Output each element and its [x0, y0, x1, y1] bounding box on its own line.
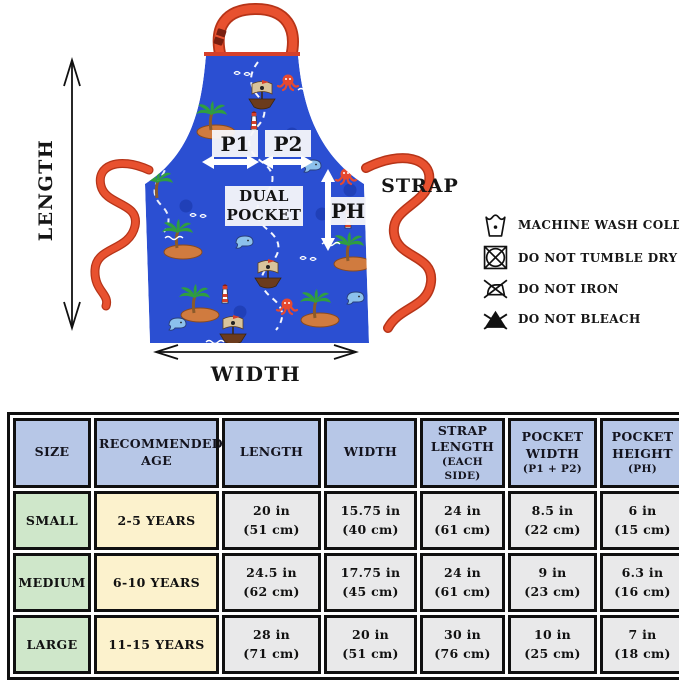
- value-cm: (45 cm): [329, 583, 412, 602]
- width-arrow: [156, 345, 356, 359]
- value-cm: (40 cm): [329, 521, 412, 540]
- table-cell: 10 in(25 cm): [508, 615, 597, 674]
- table-row-medium: MEDIUM 6-10 YEARS 24.5 in(62 cm) 17.75 i…: [13, 553, 679, 612]
- header-title: RECOMMENDED AGE: [99, 436, 214, 469]
- header-title: SIZE: [18, 444, 86, 460]
- p2-label: P2: [265, 130, 311, 157]
- column-header-size: SIZE: [13, 418, 91, 488]
- header-title: WIDTH: [329, 444, 412, 460]
- header-sub: (P1 + P2): [513, 463, 592, 477]
- value-in: 7 in: [605, 626, 679, 645]
- value-cm: (25 cm): [513, 645, 592, 664]
- value-cm: (51 cm): [329, 645, 412, 664]
- value-in: 24.5 in: [227, 564, 316, 583]
- waist-strap-left: [95, 163, 149, 306]
- value-cm: (22 cm): [513, 521, 592, 540]
- value-in: 10 in: [513, 626, 592, 645]
- size-cell: MEDIUM: [13, 553, 91, 612]
- value-cm: (16 cm): [605, 583, 679, 602]
- value-cm: (71 cm): [227, 645, 316, 664]
- care-row: DO NOT BLEACH: [480, 307, 679, 330]
- value-cm: (76 cm): [425, 645, 500, 664]
- value-in: 6.3 in: [605, 564, 679, 583]
- value-in: 24 in: [425, 502, 500, 521]
- care-row: MACHINE WASH COLD: [480, 211, 679, 238]
- size-chart-infographic: LENGTH STRAP WIDTH P1 P2 DUAL POCKET PH …: [0, 0, 679, 686]
- table-cell: 24.5 in(62 cm): [222, 553, 321, 612]
- table-cell: 20 in(51 cm): [324, 615, 417, 674]
- do-not-tumble-dry-icon: [480, 245, 510, 270]
- do-not-bleach-icon: [480, 307, 510, 330]
- size-cell: LARGE: [13, 615, 91, 674]
- value-in: 24 in: [425, 564, 500, 583]
- value-in: 9 in: [513, 564, 592, 583]
- care-label: MACHINE WASH COLD: [518, 218, 679, 232]
- value-in: 30 in: [425, 626, 500, 645]
- column-header-pocket-width: POCKET WIDTH(P1 + P2): [508, 418, 597, 488]
- care-instructions: MACHINE WASH COLD DO NOT TUMBLE DRY: [480, 211, 679, 330]
- size-table: SIZE RECOMMENDED AGE LENGTH WIDTH STRAP …: [7, 412, 679, 680]
- table-cell: 15.75 in(40 cm): [324, 491, 417, 550]
- care-label: DO NOT BLEACH: [518, 312, 641, 326]
- column-header-recommended-age: RECOMMENDED AGE: [94, 418, 219, 488]
- value-in: 15.75 in: [329, 502, 412, 521]
- value-in: 20 in: [329, 626, 412, 645]
- age-cell: 11-15 YEARS: [94, 615, 219, 674]
- care-label: DO NOT TUMBLE DRY: [518, 251, 678, 265]
- header-title: POCKET HEIGHT: [605, 429, 679, 462]
- column-header-width: WIDTH: [324, 418, 417, 488]
- value-in: 20 in: [227, 502, 316, 521]
- value-in: 28 in: [227, 626, 316, 645]
- header-sub: (PH): [605, 463, 679, 477]
- value-cm: (61 cm): [425, 583, 500, 602]
- p1-label: P1: [212, 130, 258, 157]
- table-row-small: SMALL 2-5 YEARS 20 in(51 cm) 15.75 in(40…: [13, 491, 679, 550]
- ph-label: PH: [330, 197, 366, 225]
- value-in: 17.75 in: [329, 564, 412, 583]
- header-title: LENGTH: [227, 444, 316, 460]
- dual-pocket-label: DUAL POCKET: [225, 186, 303, 226]
- table-cell: 30 in(76 cm): [420, 615, 505, 674]
- table-cell: 17.75 in(45 cm): [324, 553, 417, 612]
- size-cell: SMALL: [13, 491, 91, 550]
- care-row: DO NOT TUMBLE DRY: [480, 245, 679, 270]
- value-in: 8.5 in: [513, 502, 592, 521]
- table-cell: 24 in(61 cm): [420, 553, 505, 612]
- machine-wash-cold-icon: [480, 211, 510, 238]
- value-cm: (61 cm): [425, 521, 500, 540]
- column-header-strap-length: STRAP LENGTH(EACH SIDE): [420, 418, 505, 488]
- column-header-length: LENGTH: [222, 418, 321, 488]
- header-title: STRAP LENGTH: [425, 423, 500, 456]
- length-label: LENGTH: [35, 127, 57, 253]
- value-cm: (62 cm): [227, 583, 316, 602]
- length-arrow: [64, 60, 80, 328]
- age-cell: 6-10 YEARS: [94, 553, 219, 612]
- value-in: 6 in: [605, 502, 679, 521]
- table-cell: 28 in(71 cm): [222, 615, 321, 674]
- value-cm: (23 cm): [513, 583, 592, 602]
- care-row: DO NOT IRON: [480, 277, 679, 300]
- do-not-iron-icon: [480, 277, 510, 300]
- width-label: WIDTH: [196, 362, 316, 386]
- header-sub: (EACH SIDE): [425, 456, 500, 483]
- age-cell: 2-5 YEARS: [94, 491, 219, 550]
- table-cell: 7 in(18 cm): [600, 615, 679, 674]
- strap-label: STRAP: [374, 175, 466, 197]
- table-cell: 8.5 in(22 cm): [508, 491, 597, 550]
- table-header-row: SIZE RECOMMENDED AGE LENGTH WIDTH STRAP …: [13, 418, 679, 488]
- table-cell: 6 in(15 cm): [600, 491, 679, 550]
- column-header-pocket-height: POCKET HEIGHT(PH): [600, 418, 679, 488]
- table-cell: 9 in(23 cm): [508, 553, 597, 612]
- table-row-large: LARGE 11-15 YEARS 28 in(71 cm) 20 in(51 …: [13, 615, 679, 674]
- table-cell: 20 in(51 cm): [222, 491, 321, 550]
- value-cm: (15 cm): [605, 521, 679, 540]
- neck-strap: [213, 9, 293, 58]
- care-label: DO NOT IRON: [518, 282, 619, 296]
- header-title: POCKET WIDTH: [513, 429, 592, 462]
- value-cm: (51 cm): [227, 521, 316, 540]
- table-cell: 24 in(61 cm): [420, 491, 505, 550]
- value-cm: (18 cm): [605, 645, 679, 664]
- table-cell: 6.3 in(16 cm): [600, 553, 679, 612]
